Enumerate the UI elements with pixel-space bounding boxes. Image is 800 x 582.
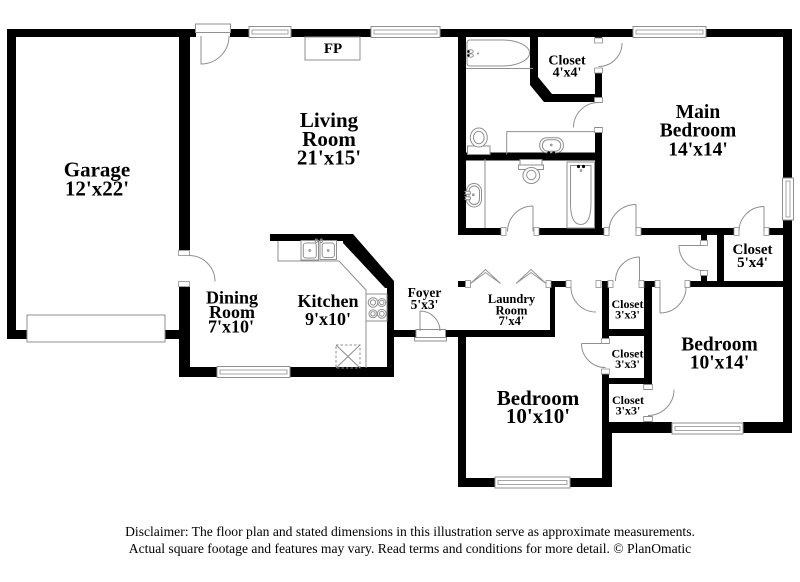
svg-text:Kitchen: Kitchen [298,291,359,311]
svg-text:Disclaimer: The floor plan and: Disclaimer: The floor plan and stated di… [125,524,695,539]
svg-text:Actual square footage and feat: Actual square footage and features may v… [129,541,691,556]
svg-text:Bedroom: Bedroom [660,121,737,142]
svg-text:4'x4': 4'x4' [553,66,582,81]
svg-text:3'x3': 3'x3' [616,404,641,418]
svg-text:9'x10': 9'x10' [305,309,351,329]
svg-text:10'x14': 10'x14' [690,353,750,374]
svg-text:3'x3': 3'x3' [615,357,640,371]
svg-text:7'x4': 7'x4' [499,314,525,328]
svg-text:FP: FP [324,41,342,57]
svg-text:5'x4': 5'x4' [737,255,768,271]
svg-text:5'x3': 5'x3' [411,297,439,312]
svg-text:3'x3': 3'x3' [615,308,640,322]
svg-text:12'x22': 12'x22' [65,177,129,201]
svg-text:14'x14': 14'x14' [668,140,728,161]
svg-text:10'x10': 10'x10' [506,404,570,428]
svg-text:7'x10': 7'x10' [208,317,254,337]
svg-text:21'x15': 21'x15' [297,146,361,170]
